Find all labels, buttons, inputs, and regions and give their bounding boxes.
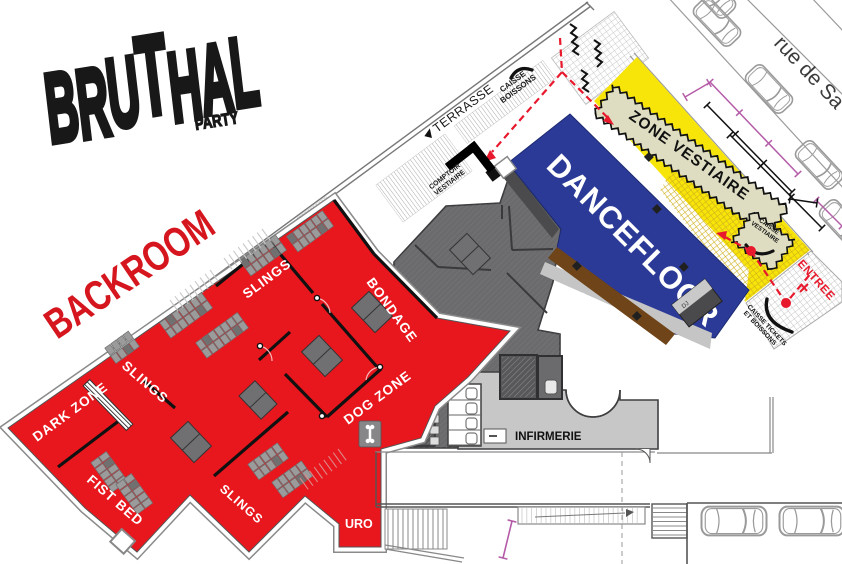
- svg-text:URO: URO: [345, 517, 373, 531]
- svg-text:INFIRMERIE: INFIRMERIE: [515, 431, 582, 443]
- svg-text:BRUTHAL: BRUTHAL: [37, 0, 265, 166]
- svg-text:rue de Sa: rue de Sa: [769, 32, 842, 114]
